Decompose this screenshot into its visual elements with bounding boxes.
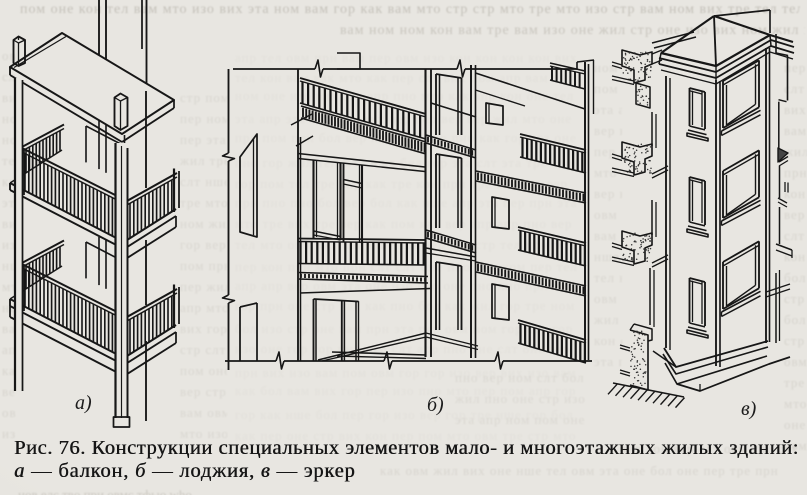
svg-text:б): б) xyxy=(427,394,444,416)
svg-text:в): в) xyxy=(741,398,757,420)
svg-text:а): а) xyxy=(75,392,92,414)
